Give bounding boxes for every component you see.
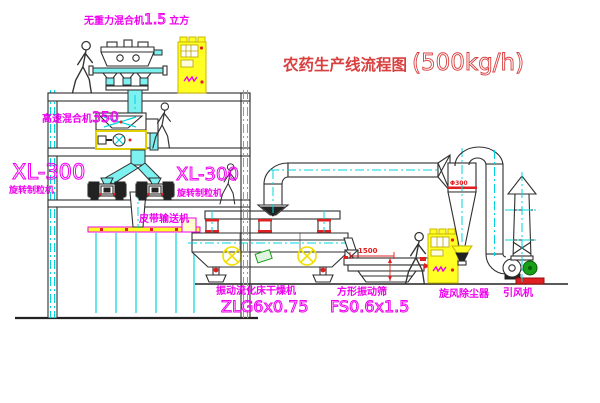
label-granulator-left-name: 旋转制粒机 <box>8 184 54 196</box>
belt-conveyor <box>88 218 200 313</box>
label-granulator-left-model: XL-300 <box>12 160 85 184</box>
dimension-1500-text: 1500 <box>358 247 378 255</box>
exhaust-duct <box>258 163 450 216</box>
fan-base <box>516 278 544 284</box>
granulator-left <box>88 178 126 200</box>
dimension-cyclone-dia-text: Φ300 <box>450 180 468 187</box>
induced-draft-fan <box>503 259 544 284</box>
label-fan: 引风机 <box>503 286 533 299</box>
label-gravity-mixer: 无重力混合机1.5立方 <box>83 12 189 28</box>
label-granulator-right-model: XL-300 <box>176 164 239 185</box>
label-screen-model: FS0.6x1.5 <box>330 297 409 316</box>
gravity-mixer <box>89 40 167 113</box>
cad-drawing-canvas: 农药生产线流程图(500kg/h) 无重力混合机1.5立方 高速混合机350 X… <box>0 0 600 403</box>
granulator-right <box>136 178 174 200</box>
label-dryer-model: ZLG6x0.75 <box>221 297 309 316</box>
label-belt-conveyor: 皮带输送机 <box>138 212 189 225</box>
label-cyclone: 旋风除尘器 <box>438 287 490 300</box>
control-cabinet-top <box>178 37 206 93</box>
fluid-bed-dryer <box>188 210 358 282</box>
drawing-title: 农药生产线流程图(500kg/h) <box>282 50 524 76</box>
control-cabinet-screen <box>428 229 458 283</box>
flow-diagram: 农药生产线流程图(500kg/h) 无重力混合机1.5立方 高速混合机350 X… <box>0 0 600 403</box>
label-granulator-right-name: 旋转制粒机 <box>176 187 222 199</box>
mixer-discharge-valves <box>103 73 151 85</box>
label-dryer-name: 振动流化床干燥机 <box>216 284 296 297</box>
